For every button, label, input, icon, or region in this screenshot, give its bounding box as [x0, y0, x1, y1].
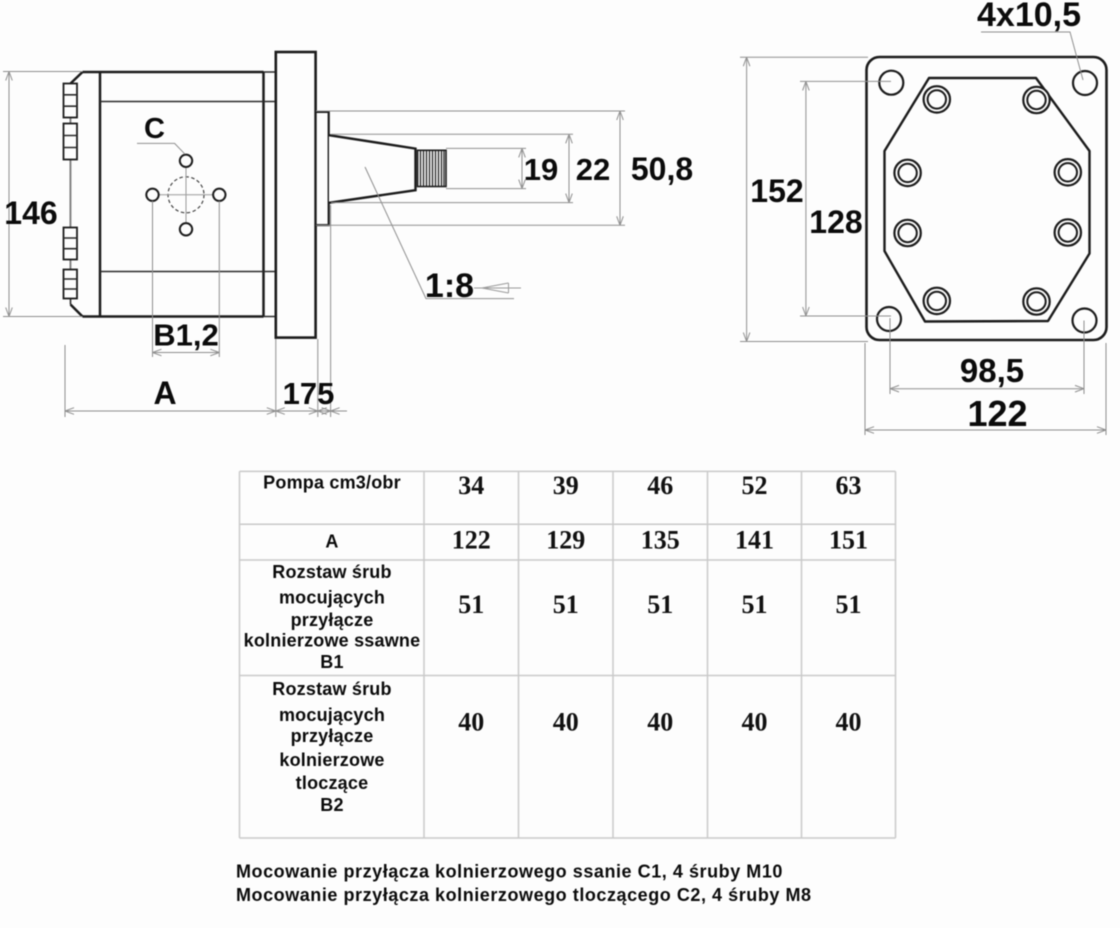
svg-text:129: 129	[546, 526, 585, 555]
svg-text:141: 141	[735, 526, 774, 555]
svg-text:C: C	[144, 113, 165, 145]
svg-text:A: A	[325, 532, 338, 552]
svg-text:tloczące: tloczące	[296, 773, 369, 793]
svg-text:98,5: 98,5	[960, 352, 1024, 389]
svg-text:przyłącze: przyłącze	[291, 726, 374, 746]
svg-text:22: 22	[576, 152, 610, 187]
svg-text:Rozstaw śrub: Rozstaw śrub	[272, 679, 391, 699]
svg-text:128: 128	[809, 204, 862, 240]
svg-text:40: 40	[647, 708, 673, 737]
svg-text:51: 51	[836, 590, 862, 619]
svg-text:mocujących: mocujących	[279, 705, 385, 725]
svg-text:Pompa cm3/obr: Pompa cm3/obr	[263, 473, 401, 493]
svg-text:51: 51	[647, 590, 673, 619]
svg-text:Mocowanie przyłącza kolnierzow: Mocowanie przyłącza kolnierzowego tloczą…	[236, 885, 812, 905]
svg-text:51: 51	[458, 590, 484, 619]
svg-text:B1: B1	[320, 652, 343, 672]
svg-text:B1,2: B1,2	[153, 318, 218, 353]
svg-text:34: 34	[458, 471, 484, 500]
svg-text:63: 63	[836, 471, 862, 500]
svg-text:przyłącze: przyłącze	[291, 610, 374, 630]
svg-text:146: 146	[4, 195, 57, 231]
svg-text:A: A	[153, 375, 176, 411]
svg-text:122: 122	[967, 393, 1027, 434]
svg-text:151: 151	[829, 526, 868, 555]
svg-text:46: 46	[647, 471, 673, 500]
svg-text:B2: B2	[320, 795, 343, 815]
svg-text:135: 135	[641, 526, 680, 555]
svg-text:19: 19	[524, 152, 558, 187]
svg-text:152: 152	[750, 173, 803, 209]
svg-text:51: 51	[553, 590, 579, 619]
svg-text:40: 40	[553, 708, 579, 737]
svg-text:122: 122	[452, 526, 491, 555]
svg-text:175: 175	[283, 376, 335, 411]
svg-text:4x10,5: 4x10,5	[977, 0, 1081, 34]
svg-text:mocujących: mocujących	[279, 588, 385, 608]
svg-text:1:8: 1:8	[425, 267, 474, 305]
svg-text:39: 39	[553, 471, 579, 500]
svg-text:40: 40	[836, 708, 862, 737]
svg-text:40: 40	[742, 708, 768, 737]
svg-text:50,8: 50,8	[631, 151, 693, 187]
svg-text:40: 40	[458, 708, 484, 737]
svg-text:Mocowanie przyłącza kolnierzow: Mocowanie przyłącza kolnierzowego ssanie…	[236, 862, 783, 882]
svg-text:kolnierzowe ssawne: kolnierzowe ssawne	[244, 631, 421, 651]
svg-text:52: 52	[742, 471, 768, 500]
svg-text:kolnierzowe: kolnierzowe	[279, 750, 384, 770]
svg-text:Rozstaw śrub: Rozstaw śrub	[272, 562, 391, 582]
svg-text:51: 51	[742, 590, 768, 619]
